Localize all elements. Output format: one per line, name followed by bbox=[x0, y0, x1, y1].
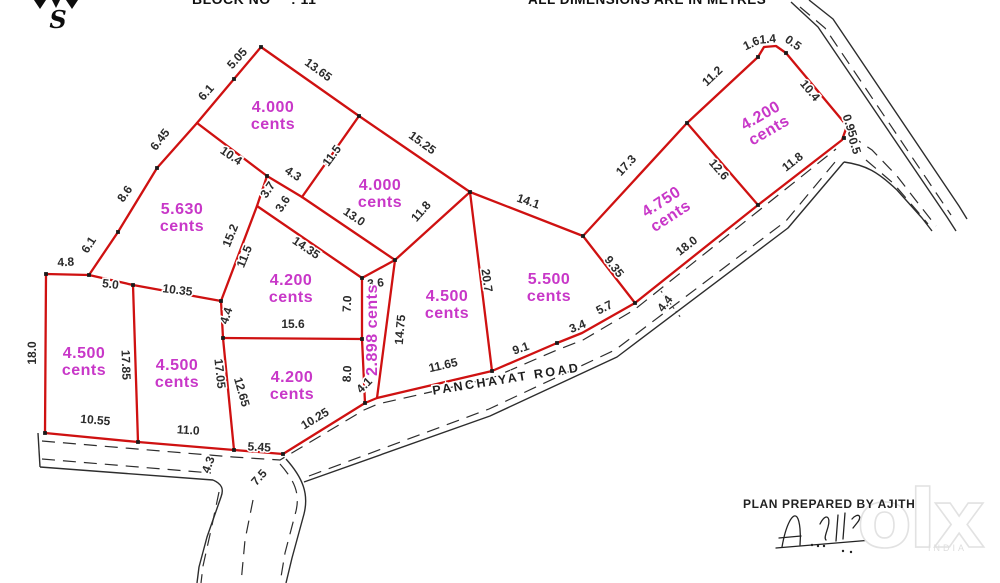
dimension-label: 15.2 bbox=[219, 222, 241, 249]
plot-area-label: 4.200cents bbox=[269, 272, 313, 306]
dimension-label: 10.4 bbox=[218, 143, 245, 168]
plot-area-label: 4.000cents bbox=[251, 99, 295, 133]
dimension-label: 0.5 bbox=[782, 32, 804, 53]
dimension-label: 10.4 bbox=[797, 77, 823, 104]
dimension-label: 6.1 bbox=[78, 234, 99, 256]
vertex-dot bbox=[633, 301, 637, 305]
dimension-label: 17.05 bbox=[211, 358, 228, 390]
dimension-label: 7.0 bbox=[340, 295, 355, 313]
dimension-label: 14.1 bbox=[515, 191, 542, 212]
dimension-label: 18.0 bbox=[25, 341, 39, 365]
dimension-label: 7.5 bbox=[248, 466, 270, 488]
dimension-label: 6.45 bbox=[147, 126, 173, 153]
plot-area-label: 5.630cents bbox=[160, 201, 204, 235]
vertex-dot bbox=[43, 431, 47, 435]
dimension-label: 10.55 bbox=[80, 412, 111, 429]
vertex-dot bbox=[357, 114, 361, 118]
dimension-label: 8.6 bbox=[114, 183, 135, 205]
dimension-label: 9.35 bbox=[601, 253, 627, 280]
dimension-label: 5.7 bbox=[594, 297, 616, 317]
vertex-dot bbox=[221, 336, 225, 340]
vertex-dot bbox=[265, 174, 269, 178]
compass-letter: S bbox=[49, 5, 66, 34]
dimension-label: 3.6 bbox=[272, 193, 293, 215]
dimension-label: 12.6 bbox=[706, 156, 732, 183]
dimension-label: 4.4 bbox=[654, 292, 676, 314]
vertex-dot bbox=[468, 190, 472, 194]
dimension-label: 11.5 bbox=[234, 243, 256, 270]
plot-area-label: 4.500cents bbox=[155, 357, 199, 391]
vertex-dot bbox=[131, 283, 135, 287]
dimension-label: 4.4 bbox=[217, 305, 236, 326]
vertex-dot bbox=[116, 230, 120, 234]
dimension-label: 5.0 bbox=[101, 276, 120, 292]
vertex-dot bbox=[490, 369, 494, 373]
olx-watermark: olx INDIA bbox=[857, 473, 984, 566]
dimension-label: 10.35 bbox=[162, 281, 194, 299]
plot-area-label: 5.500cents bbox=[527, 271, 571, 305]
dimension-label: 17.3 bbox=[613, 152, 639, 179]
dimension-label: 11.65 bbox=[427, 355, 459, 375]
dimension-label: 5.45 bbox=[247, 439, 271, 454]
vertex-dot bbox=[281, 452, 285, 456]
north-arrow-icon: S bbox=[34, 0, 78, 34]
dimension-label: 4.1 bbox=[353, 374, 375, 396]
vertex-dot bbox=[219, 299, 223, 303]
prepared-by: PLAN PREPARED BY AJITH bbox=[743, 497, 915, 511]
dimension-label: 14.35 bbox=[290, 233, 323, 262]
plot-area-label: 4.200cents bbox=[270, 369, 314, 403]
dimension-label: 8.0 bbox=[340, 365, 355, 383]
vertex-dot bbox=[44, 272, 48, 276]
vertex-dot bbox=[259, 45, 263, 49]
dimension-label: 11.0 bbox=[176, 422, 200, 438]
dimension-labels: 5.056.16.458.66.14.813.6515.2510.44.311.… bbox=[25, 31, 864, 488]
vertex-dot bbox=[136, 440, 140, 444]
plot-area-label: 4.000cents bbox=[358, 177, 402, 211]
vertex-dot bbox=[87, 273, 91, 277]
dimension-label: 17.85 bbox=[118, 350, 133, 381]
vertex-dot bbox=[581, 234, 585, 238]
vertex-dot bbox=[232, 77, 236, 81]
dimension-label: 3.4 bbox=[567, 317, 588, 336]
vertex-dot bbox=[842, 136, 846, 140]
plot-area-label: 4.200cents bbox=[737, 98, 792, 150]
dimension-label: 6.1 bbox=[195, 81, 217, 103]
vertex-dot bbox=[155, 166, 159, 170]
dimension-label: 14.75 bbox=[392, 314, 409, 345]
olx-country: INDIA bbox=[928, 543, 967, 553]
plan-drawing: S bbox=[0, 0, 1000, 583]
dimension-label: 15.25 bbox=[406, 128, 439, 157]
vertex-dot bbox=[756, 55, 760, 59]
vertex-dot bbox=[784, 51, 788, 55]
survey-plan: BLOCK NO : 11 ALL DIMENSIONS ARE IN METR… bbox=[0, 0, 1000, 583]
dimension-label: 4.8 bbox=[57, 255, 75, 270]
vertex-dot bbox=[360, 276, 364, 280]
vertex-dot bbox=[232, 448, 236, 452]
vertex-dot bbox=[555, 341, 559, 345]
plot-area-label: 4.750cents bbox=[638, 183, 694, 236]
vertex-dot bbox=[685, 121, 689, 125]
dimension-label: 11.2 bbox=[699, 63, 725, 89]
dimension-label: 11.5 bbox=[319, 142, 344, 169]
vertex-dot bbox=[363, 401, 367, 405]
dimension-label: 12.65 bbox=[231, 376, 253, 409]
plot-area-label: 4.500cents bbox=[425, 288, 469, 322]
vertex-dot bbox=[393, 258, 397, 262]
dimension-label: 4.3 bbox=[199, 454, 218, 475]
dimension-label: 15.6 bbox=[281, 317, 305, 331]
dimension-label: 11.8 bbox=[408, 198, 434, 225]
dimension-label: 0.5 bbox=[846, 136, 865, 157]
vertex-dot bbox=[756, 203, 760, 207]
plot-area-label: 2.898 cents bbox=[364, 284, 381, 376]
plot-area-label: 4.500cents bbox=[62, 345, 106, 379]
dimension-label: 5.05 bbox=[224, 45, 250, 72]
dimension-label: 1.4 bbox=[759, 31, 777, 46]
dimension-label: 4.3 bbox=[282, 163, 304, 184]
